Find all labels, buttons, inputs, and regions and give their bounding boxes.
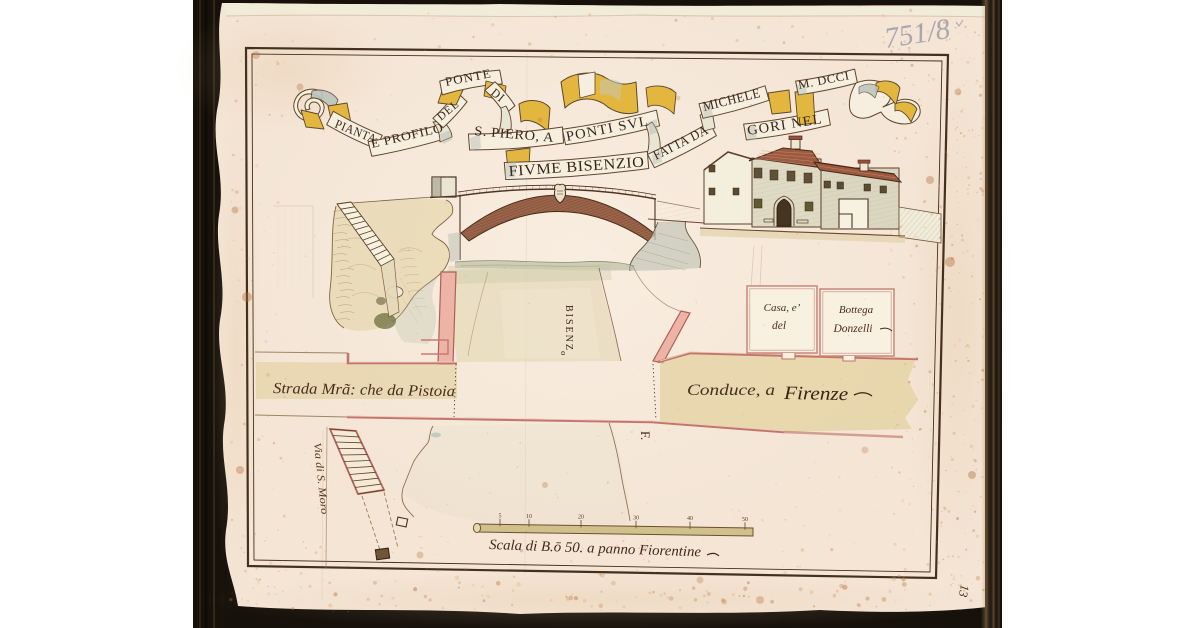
- svg-text:BISENZ: BISENZ: [563, 305, 574, 352]
- svg-text:40: 40: [687, 516, 693, 522]
- svg-text:del: del: [772, 320, 786, 332]
- svg-text:F.: F.: [638, 431, 652, 440]
- svg-text:Casa, e’: Casa, e’: [764, 302, 801, 314]
- svg-text:Conduce, a: Conduce, a: [687, 382, 775, 399]
- svg-text:30: 30: [633, 515, 639, 521]
- svg-text:Strada Mrã: che da Pistoia: Strada Mrã: che da Pistoia: [273, 380, 456, 400]
- svg-text:Donzelli: Donzelli: [833, 323, 873, 335]
- svg-text:Bottega: Bottega: [839, 304, 874, 316]
- svg-text:5: 5: [499, 513, 502, 519]
- svg-text:50: 50: [742, 517, 748, 523]
- svg-text:10: 10: [526, 514, 532, 520]
- svg-text:Firenze: Firenze: [783, 383, 848, 405]
- svg-text:20: 20: [578, 515, 584, 521]
- svg-text:o: o: [559, 351, 569, 355]
